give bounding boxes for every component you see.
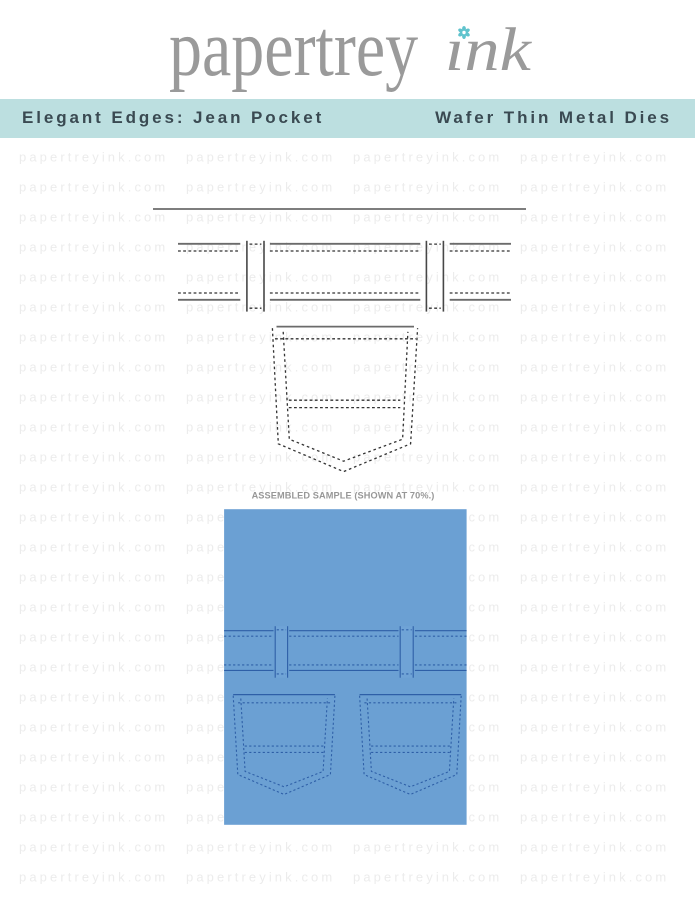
svg-text:papertrey: papertrey (169, 3, 418, 93)
svg-text:ASSEMBLED SAMPLE (SHOWN AT 70%: ASSEMBLED SAMPLE (SHOWN AT 70%.) (252, 491, 435, 501)
svg-text:ınk: ınk (445, 16, 533, 84)
